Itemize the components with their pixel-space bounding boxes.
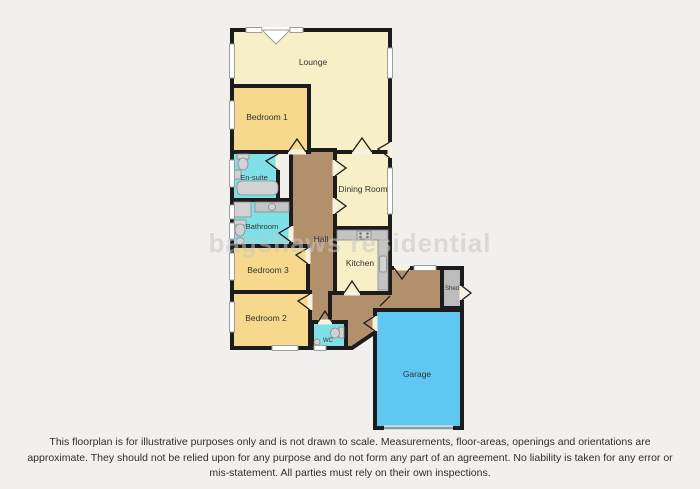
label-lounge: Lounge	[299, 57, 328, 67]
window-dining	[388, 168, 393, 214]
label-bedroom3: Bedroom 3	[247, 265, 289, 275]
label-garage: Garage	[403, 369, 432, 379]
label-ensuite: En-suite	[240, 173, 268, 182]
window-lounge-top-2	[290, 28, 303, 33]
watermark: bagshaws residential	[209, 228, 492, 258]
floorplan-drawing: bagshaws residential Lounge Bedroom 1 En…	[0, 0, 700, 489]
wc-toilet-icon	[331, 328, 340, 338]
window-lounge-top-1	[246, 28, 262, 33]
shower-icon	[234, 202, 251, 217]
bathroom-sink-icon	[269, 204, 276, 211]
floorplan-page: bagshaws residential Lounge Bedroom 1 En…	[0, 0, 700, 489]
kitchen-sink-icon	[380, 256, 387, 272]
window-bedroom2-bottom	[272, 346, 298, 351]
window-ensuite	[230, 160, 235, 187]
window-bathroom-1	[230, 205, 235, 219]
label-bedroom2: Bedroom 2	[245, 313, 287, 323]
window-lounge-right	[388, 48, 393, 78]
label-bedroom1: Bedroom 1	[246, 112, 288, 122]
label-dining: Dining Room	[338, 184, 387, 194]
window-bedroom1	[230, 101, 235, 129]
window-entrance	[414, 266, 436, 271]
label-shed: Shed	[445, 286, 459, 292]
window-bedroom2-left	[230, 302, 235, 332]
label-kitchen: Kitchen	[346, 258, 375, 268]
wc-sink-icon	[314, 339, 320, 345]
ensuite-toilet-icon	[238, 158, 248, 170]
window-lounge-left	[230, 44, 235, 78]
label-bathroom: Bathroom	[246, 222, 279, 231]
disclaimer-text: This floorplan is for illustrative purpo…	[19, 435, 681, 481]
ensuite-bath-icon	[237, 181, 278, 195]
label-wc: WC	[323, 338, 334, 344]
window-wc	[314, 346, 326, 351]
label-hall: Hall	[314, 234, 329, 244]
